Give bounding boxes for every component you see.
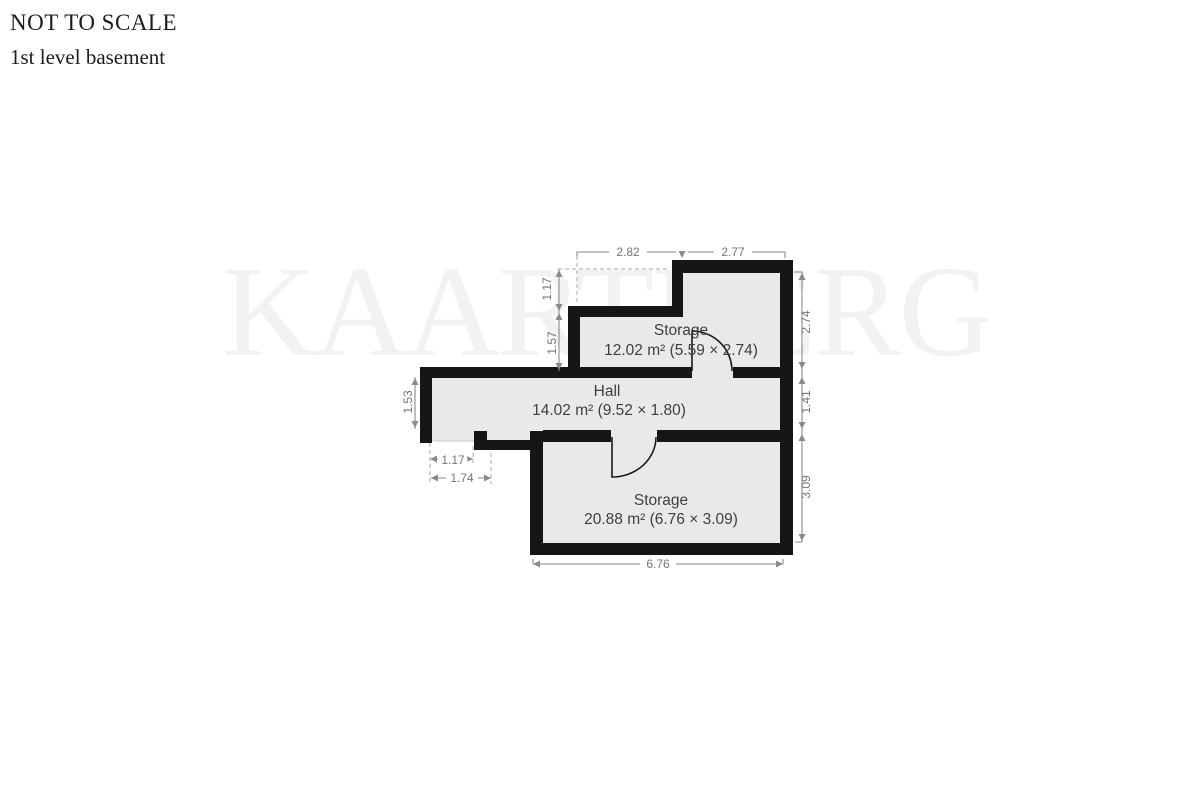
dim-right-lower: 3.09 [799, 475, 813, 498]
dim-notch-outer: 1.74 [447, 471, 476, 485]
room-name-hall: Hall [594, 383, 621, 401]
room-area-storage-upper: 12.02 m² (5.59 × 2.74) [604, 342, 758, 360]
dim-right-mid: 1.41 [799, 390, 813, 413]
floorplan-page: NOT TO SCALE 1st level basement KAARTBER… [0, 0, 1200, 810]
dim-right-upper: 2.74 [799, 310, 813, 333]
dim-left-hall: 1.53 [401, 390, 415, 413]
dim-top-left: 2.82 [613, 245, 642, 259]
dim-notch-inner: 1.17 [438, 453, 467, 467]
door-threshold-upper [692, 367, 733, 378]
dim-left-mid: 1.57 [545, 331, 559, 354]
room-name-storage-upper: Storage [654, 322, 708, 340]
door-threshold-lower [611, 430, 657, 442]
room-area-hall: 14.02 m² (9.52 × 1.80) [532, 402, 686, 420]
dim-top-right: 2.77 [718, 245, 747, 259]
room-name-storage-lower: Storage [634, 492, 688, 510]
dim-bottom: 6.76 [643, 557, 672, 571]
room-area-storage-lower: 20.88 m² (6.76 × 3.09) [584, 511, 738, 529]
dim-left-upper: 1.17 [540, 277, 554, 300]
